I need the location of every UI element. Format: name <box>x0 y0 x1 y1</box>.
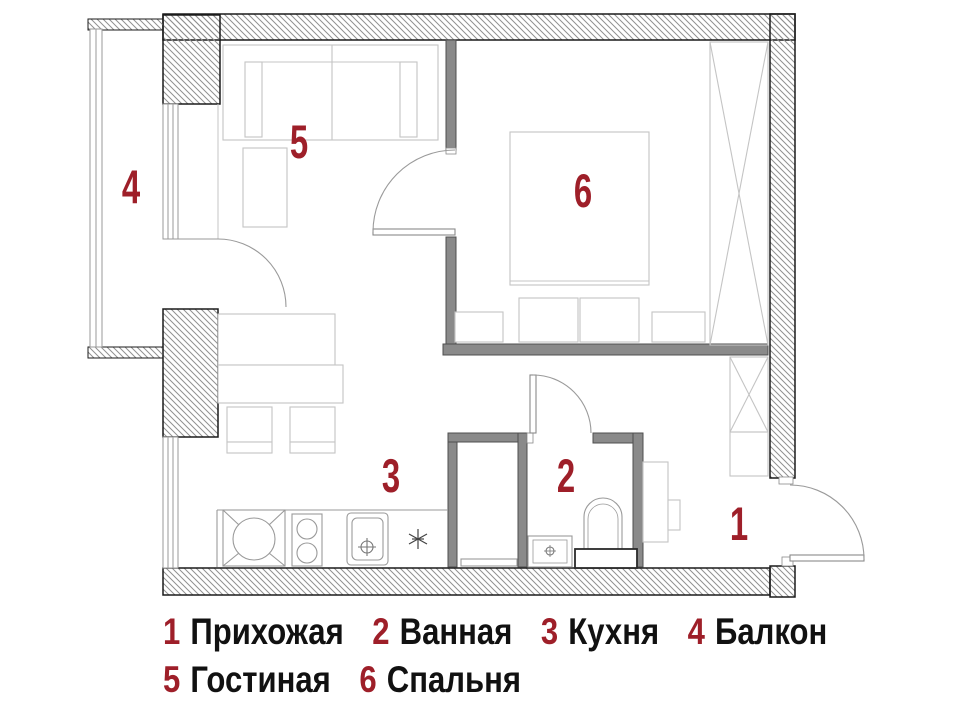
legend-num: 4 <box>688 608 705 656</box>
dining-table-icon <box>218 314 343 403</box>
bathroom-sink-icon <box>528 536 572 567</box>
legend-num: 5 <box>163 656 180 704</box>
chair-icon <box>227 407 272 453</box>
nightstand-icon <box>652 312 705 342</box>
balcony-top-bar <box>88 19 163 30</box>
legend-row-2: 5 Гостиная 6 Спальня <box>163 656 827 704</box>
wall-living-bedroom-upper <box>446 40 456 150</box>
closet-top-wall <box>448 433 527 442</box>
legend-name: Гостиная <box>190 656 330 704</box>
hall-cabinet-crossed-icon <box>730 357 768 476</box>
bottom-wall <box>163 568 770 595</box>
hall-console-icon <box>643 462 680 542</box>
room-label-balcony: 4 <box>122 160 141 213</box>
legend-name: Спальня <box>387 656 521 704</box>
left-pier <box>163 309 218 437</box>
bathroom-fixtures <box>461 498 637 568</box>
living-room-furniture <box>218 45 438 453</box>
legend-name: Ванная <box>400 608 513 656</box>
legend-num: 1 <box>163 608 180 656</box>
bathroom-right-wall <box>633 433 643 567</box>
bedroom-furniture <box>455 42 768 345</box>
bedroom-door-icon <box>373 150 455 235</box>
nightstand-icon <box>455 312 503 342</box>
top-left-corner-block <box>163 15 220 104</box>
legend: 1 Прихожая 2 Ванная 3 Кухня 4 Балкон 5 Г… <box>163 608 954 704</box>
washing-machine-icon <box>223 510 285 566</box>
balcony-bottom-bar <box>88 347 163 358</box>
legend-entry-kitchen: 3 Кухня <box>541 608 659 656</box>
room-label-kitchen: 3 <box>382 449 400 502</box>
room-label-hallway: 1 <box>730 497 748 550</box>
hallway-furniture <box>643 357 768 542</box>
legend-num: 3 <box>541 608 558 656</box>
stove-burners-icon <box>292 514 322 566</box>
legend-num: 2 <box>372 608 389 656</box>
closet-shelf <box>461 559 517 566</box>
chair-icon <box>290 407 335 453</box>
right-wall <box>770 14 795 478</box>
star-symbol-icon <box>409 529 427 549</box>
legend-name: Кухня <box>568 608 659 656</box>
legend-row-1: 1 Прихожая 2 Ванная 3 Кухня 4 Балкон <box>163 608 827 656</box>
legend-entry-bedroom: 6 Спальня <box>359 656 521 704</box>
bedroom-bottom-wall <box>443 344 768 355</box>
closet-left-wall <box>448 433 457 567</box>
legend-entry-balcony: 4 Балкон <box>688 608 828 656</box>
sofa-icon <box>223 45 438 140</box>
balcony-door-icon <box>218 239 286 307</box>
legend-name: Прихожая <box>190 608 343 656</box>
wardrobe-crossed-icon <box>710 42 768 345</box>
side-table-icon <box>243 148 287 227</box>
legend-name: Балкон <box>715 608 827 656</box>
room-label-bedroom: 6 <box>574 164 592 217</box>
toilet-icon <box>575 498 637 568</box>
legend-entry-living: 5 Гостиная <box>163 656 331 704</box>
room-label-living: 5 <box>290 115 308 168</box>
floor-plan-page: 1 2 3 4 5 6 1 Прихожая 2 Ванная 3 Кухня … <box>0 0 960 720</box>
windows <box>90 29 218 568</box>
bottom-right-block <box>770 566 795 597</box>
legend-entry-bathroom: 2 Ванная <box>372 608 512 656</box>
kitchen-fixtures <box>217 510 448 567</box>
kitchen-sink-drain-icon <box>347 513 388 565</box>
legend-num: 6 <box>359 656 376 704</box>
entry-door-icon <box>790 485 864 561</box>
balcony-glazing-icon <box>90 29 102 347</box>
bathroom-door-icon <box>530 375 591 433</box>
balcony-window-icon <box>163 104 218 239</box>
closet-right-wall <box>518 433 527 567</box>
legend-entry-hallway: 1 Прихожая <box>163 608 344 656</box>
kitchen-window-icon <box>163 437 178 568</box>
top-wall <box>163 14 795 40</box>
room-label-bathroom: 2 <box>557 449 575 502</box>
floor-plan-drawing: 1 2 3 4 5 6 <box>0 0 960 606</box>
